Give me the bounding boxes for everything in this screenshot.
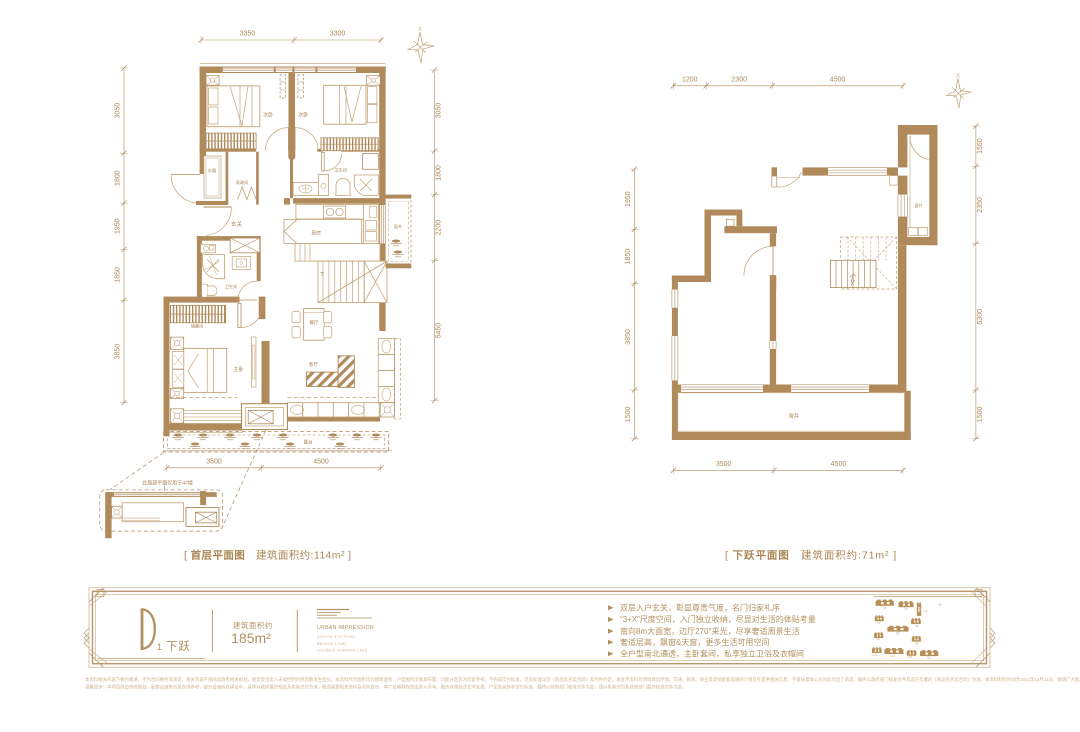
svg-text:玄关: 玄关 [231, 220, 243, 228]
svg-text:6#: 6# [896, 632, 900, 636]
svg-text:客厅: 客厅 [309, 361, 319, 368]
svg-text:1500: 1500 [625, 407, 632, 423]
svg-text:北: 北 [956, 73, 960, 78]
svg-text:1800: 1800 [436, 165, 443, 181]
svg-text:URBAN IMPRESSION: URBAN IMPRESSION [317, 625, 374, 631]
svg-text:3300: 3300 [330, 31, 346, 38]
svg-text:1800: 1800 [115, 170, 122, 186]
svg-text:1950: 1950 [625, 191, 632, 207]
svg-text:次卧: 次卧 [298, 112, 308, 119]
svg-text:7#: 7# [876, 638, 880, 642]
svg-text:12#: 12# [872, 653, 878, 657]
svg-text:3050: 3050 [436, 103, 443, 119]
svg-text:11#: 11# [890, 654, 895, 658]
svg-text:1: 1 [157, 642, 162, 652]
svg-text:3500: 3500 [716, 461, 732, 468]
svg-text:餐厅: 餐厅 [309, 319, 319, 326]
svg-text:1850: 1850 [625, 249, 632, 265]
svg-text:[ 首层平面图 建筑面积约:114m² ]: [ 首层平面图 建筑面积约:114m² ] [184, 549, 351, 562]
svg-text:4#: 4# [877, 621, 881, 625]
svg-text:窗井: 窗井 [394, 223, 402, 229]
svg-text:DOUBLE SUBWAY LINE: DOUBLE SUBWAY LINE [317, 648, 368, 653]
svg-text:3350: 3350 [240, 31, 256, 38]
svg-text:SOUTH 4TH RING: SOUTH 4TH RING [317, 634, 356, 639]
svg-text:卫生间: 卫生间 [225, 283, 238, 290]
svg-text:厨房: 厨房 [311, 229, 321, 236]
svg-text:北: 北 [418, 26, 422, 31]
svg-text:主卧: 主卧 [233, 366, 243, 373]
svg-text:南向8m大面宽，边厅270°采光，尽享奢适周景生活: 南向8m大面宽，边厅270°采光，尽享奢适周景生活 [620, 626, 800, 636]
svg-text:1200: 1200 [682, 76, 698, 83]
svg-text:[ 下跃平面图 建筑面积约:71m² ]: [ 下跃平面图 建筑面积约:71m² ] [725, 549, 897, 562]
svg-text:5300: 5300 [977, 309, 984, 325]
svg-text:2350: 2350 [977, 197, 984, 213]
svg-text:4500: 4500 [831, 461, 847, 468]
svg-text:185m²: 185m² [231, 630, 271, 646]
svg-text:2200: 2200 [436, 220, 443, 236]
svg-text:窗井: 窗井 [915, 202, 923, 208]
svg-text:4500: 4500 [313, 458, 329, 465]
svg-text:1550: 1550 [977, 138, 984, 154]
svg-text:10#: 10# [907, 655, 913, 659]
svg-text:1850: 1850 [115, 267, 122, 283]
svg-text:下: 下 [320, 272, 325, 278]
svg-text:5450: 5450 [436, 323, 443, 339]
svg-text:3850: 3850 [625, 329, 632, 345]
svg-text:“3+X”尺度空间，入门独立收纳，尽显对生活的体贴考量: “3+X”尺度空间，入门独立收纳，尽显对生活的体贴考量 [620, 614, 816, 624]
svg-text:2300: 2300 [731, 76, 747, 83]
svg-text:1950: 1950 [115, 218, 122, 234]
svg-text:水暖: 水暖 [208, 167, 217, 174]
svg-text:1#: 1# [924, 609, 928, 613]
svg-text:本资料相关内容乃要约邀请，不为合同要约或承诺，相关内容不排除: 本资料相关内容乃要约邀请，不为合同要约或承诺，相关内容不排除因政府相关规划、规定… [85, 676, 1080, 683]
svg-text:9#: 9# [927, 656, 931, 660]
svg-text:1500: 1500 [977, 407, 984, 423]
svg-text:家政间: 家政间 [236, 179, 249, 186]
svg-text:奢适层高，飘窗&天窗，更多生活可用空间: 奢适层高，飘窗&天窗，更多生活可用空间 [620, 637, 769, 647]
svg-text:全户型南北通透，主卧套间，私享独立卫浴及衣帽间: 全户型南北通透，主卧套间，私享独立卫浴及衣帽间 [620, 649, 804, 659]
svg-text:卫生间: 卫生间 [334, 166, 347, 173]
svg-text:露台: 露台 [304, 439, 313, 446]
svg-text:3850: 3850 [115, 344, 122, 360]
svg-text:次卧: 次卧 [263, 112, 273, 119]
svg-text:BESIDE LIVAT: BESIDE LIVAT [317, 641, 348, 646]
svg-text:此局部平面仅用于4#楼: 此局部平面仅用于4#楼 [142, 480, 193, 487]
svg-text:2#: 2# [904, 607, 908, 611]
svg-text:下跃: 下跃 [166, 639, 191, 653]
svg-text:3#: 3# [883, 606, 887, 610]
svg-text:窗井: 窗井 [789, 413, 799, 420]
svg-text:5#: 5# [915, 624, 919, 628]
svg-text:✛: ✛ [938, 602, 942, 607]
svg-text:3050: 3050 [115, 103, 122, 119]
svg-text:双层入户玄关，彰显尊贵气度，名门归家礼序: 双层入户玄关，彰显尊贵气度，名门归家礼序 [620, 603, 780, 613]
svg-text:储藏间: 储藏间 [191, 323, 204, 330]
svg-text:8#: 8# [915, 642, 919, 646]
svg-text:3500: 3500 [206, 458, 222, 465]
svg-text:4500: 4500 [830, 76, 846, 83]
svg-text:建筑面积约: 建筑面积约 [233, 621, 273, 630]
svg-text:温馨提示：本项目周边市政规划、配套设施等信息仅供参考，部分设: 温馨提示：本项目周边市政规划、配套设施等信息仅供参考，部分设施尚在建设中，具体以… [85, 684, 687, 691]
